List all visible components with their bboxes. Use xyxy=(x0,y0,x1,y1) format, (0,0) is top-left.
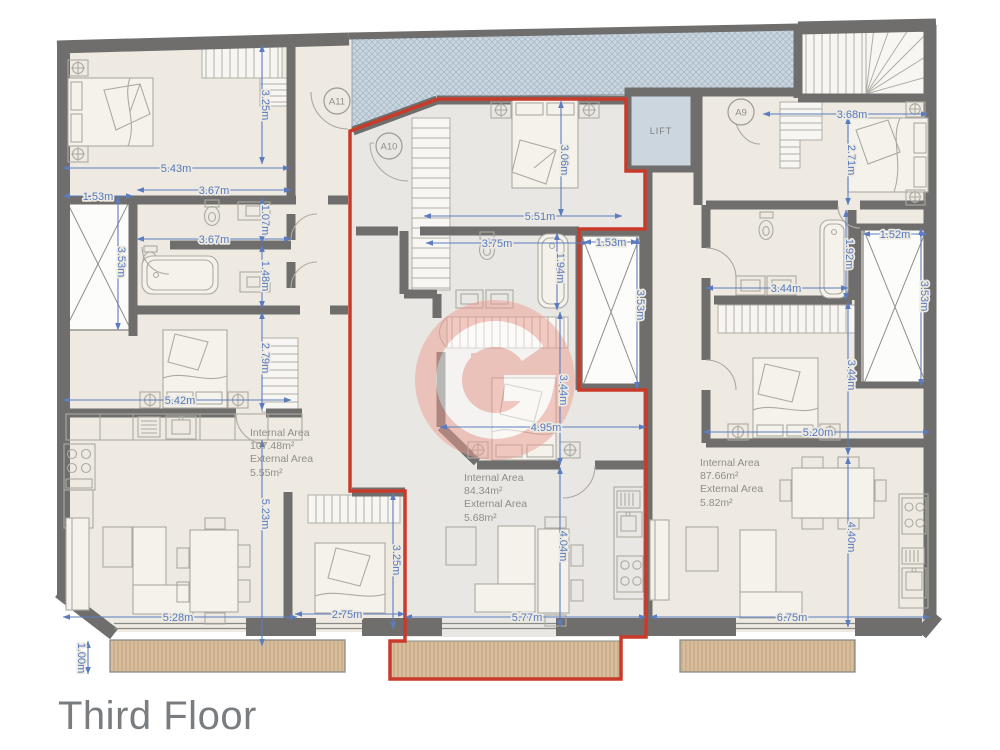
dimension-label: 5.23m xyxy=(259,499,271,530)
floor-plan-canvas: LIFT xyxy=(0,0,1000,750)
dimension-label: 3.53m xyxy=(634,290,646,321)
dimension-label: 3.68m xyxy=(837,109,868,121)
balcony-right xyxy=(680,640,855,672)
dimension-label: 3.75m xyxy=(482,238,513,250)
external-area-label: External Area xyxy=(700,483,763,495)
bathtub xyxy=(142,256,218,294)
external-area-value: 5.55m² xyxy=(250,467,283,479)
stairs-left-lower xyxy=(308,495,400,523)
external-area-value: 5.82m² xyxy=(700,497,733,509)
bed xyxy=(848,118,928,192)
page-title: Third Floor xyxy=(58,694,257,739)
stairs-central-upper xyxy=(412,118,450,290)
dimension-label: 1.94m xyxy=(554,253,566,284)
stairs-right-apartment xyxy=(718,305,857,333)
internal-area-label: Internal Area xyxy=(700,457,760,469)
dimension-label: 4.40m xyxy=(845,522,857,553)
unit-marker-a9: A9 xyxy=(735,108,747,119)
lift-shaft: LIFT xyxy=(628,91,694,169)
dimension-label: 3.44m xyxy=(845,360,857,391)
dimension-label: 5.77m xyxy=(512,612,543,624)
unit-marker-a11: A11 xyxy=(329,97,345,108)
dining-table xyxy=(780,457,886,529)
external-area-value: 5.68m² xyxy=(464,512,497,524)
stairwell-top-right xyxy=(800,26,930,95)
dimension-label: 2.79m xyxy=(259,343,271,374)
watermark-logo xyxy=(415,300,575,460)
bed xyxy=(68,78,153,146)
dimension-label: 5.43m xyxy=(161,163,192,175)
bed xyxy=(753,358,818,438)
balcony-center xyxy=(389,641,620,679)
dimension-label: 3.53m xyxy=(115,247,127,278)
dimension-label: 4.95m xyxy=(531,422,562,434)
dimension-label: 3.67m xyxy=(199,234,230,246)
light-well-central xyxy=(582,236,640,388)
bed xyxy=(315,543,385,613)
dimension-label: 1.53m xyxy=(83,191,114,203)
external-area-label: External Area xyxy=(464,498,527,510)
dimension-label: 5.42m xyxy=(165,395,196,407)
dimension-label: 3.06m xyxy=(558,145,570,176)
unit-marker-a10: A10 xyxy=(381,142,398,153)
dimension-label: 6.75m xyxy=(777,612,808,624)
dimension-label: 1.52m xyxy=(880,229,911,241)
internal-area-value: 87.66m² xyxy=(700,470,739,482)
dimension-label: 1.53m xyxy=(596,237,627,249)
external-area-label: External Area xyxy=(250,453,313,465)
dimension-label: 3.53m xyxy=(918,281,930,312)
balcony-left xyxy=(110,640,345,672)
dimension-label: 2.71m xyxy=(845,145,857,176)
dimension-label: 1.07m xyxy=(259,205,271,236)
dimension-label: 2.75m xyxy=(332,609,363,621)
floor-plan-page: LIFT xyxy=(0,0,1000,750)
dimension-label: 3.25m xyxy=(259,90,271,121)
dimension-label: 5.20m xyxy=(803,427,834,439)
dimension-label: 3.44m xyxy=(771,283,802,295)
dimension-label: 1.00m xyxy=(75,643,87,674)
dimension-label: 1.92m xyxy=(843,239,855,270)
internal-area-value: 107.48m² xyxy=(250,440,295,452)
internal-area-label: Internal Area xyxy=(464,472,524,484)
dimension-label: 3.25m xyxy=(390,545,402,576)
dimension-label: 3.67m xyxy=(199,185,230,197)
dimension-label: 3.44m xyxy=(557,375,569,406)
dimension-label: 5.28m xyxy=(163,612,194,624)
lift-label: LIFT xyxy=(650,126,673,136)
light-well-right xyxy=(863,228,927,386)
dimension-label: 5.51m xyxy=(525,211,556,223)
dimension-label: 4.04m xyxy=(557,531,569,562)
dimension-label: 1.48m xyxy=(259,261,271,292)
internal-area-label: Internal Area xyxy=(250,427,310,439)
internal-area-value: 84.34m² xyxy=(464,485,503,497)
